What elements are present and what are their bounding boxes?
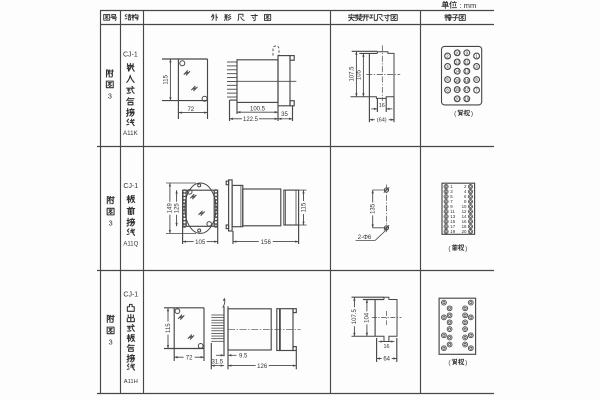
svg-text:35: 35 [281,112,288,118]
svg-text:9.5: 9.5 [239,354,248,360]
svg-text:115: 115 [166,323,172,333]
svg-text:13: 13 [464,69,469,74]
svg-text:(64): (64) [377,118,387,124]
svg-text:12: 12 [455,60,460,65]
svg-text:CJ-1: CJ-1 [123,183,138,190]
svg-text:104: 104 [365,312,371,323]
svg-text:64: 64 [383,357,390,363]
svg-text:A11Q: A11Q [123,242,138,248]
svg-text:122.5: 122.5 [243,117,259,123]
svg-text:31.5: 31.5 [211,359,223,365]
svg-text:125: 125 [174,203,180,214]
svg-text:105: 105 [357,69,363,80]
svg-text:72: 72 [186,355,193,361]
svg-text:19: 19 [464,96,469,101]
svg-text:20: 20 [462,229,467,234]
svg-text:107.5: 107.5 [352,309,358,325]
svg-text:126: 126 [257,364,268,370]
svg-text:115: 115 [301,202,307,212]
svg-text:2-Φ6: 2-Φ6 [358,235,372,241]
svg-text:107.5: 107.5 [350,66,356,82]
svg-text:135: 135 [371,203,377,214]
svg-text:CJ-1: CJ-1 [123,52,138,59]
svg-text:10: 10 [455,50,460,55]
svg-text:16: 16 [455,78,460,83]
svg-text:3: 3 [109,219,113,228]
svg-text:16: 16 [379,103,385,109]
svg-text:CJ-1: CJ-1 [123,291,138,298]
svg-text:A11K: A11K [123,130,139,137]
svg-text:): ) [471,111,473,118]
svg-text::: : [460,1,462,10]
svg-text:A11H: A11H [124,379,138,385]
svg-text:100.5: 100.5 [250,107,266,113]
svg-text:11: 11 [465,60,470,65]
svg-text:20: 20 [455,96,460,101]
svg-text:156: 156 [261,240,272,246]
svg-text:16: 16 [384,344,390,350]
svg-text:): ) [465,360,467,367]
svg-text:): ) [465,245,467,252]
svg-text:18: 18 [455,87,460,92]
svg-text:115: 115 [164,74,170,84]
svg-text:105: 105 [195,240,206,246]
svg-text:mm: mm [464,1,477,10]
svg-text:15: 15 [464,78,469,83]
svg-text:3: 3 [108,91,112,100]
svg-text:14: 14 [455,69,460,74]
svg-text:3: 3 [109,337,113,346]
svg-text:19: 19 [450,229,455,234]
svg-text:72: 72 [187,107,194,113]
svg-text:17: 17 [464,87,469,92]
svg-text:149: 149 [168,203,174,214]
